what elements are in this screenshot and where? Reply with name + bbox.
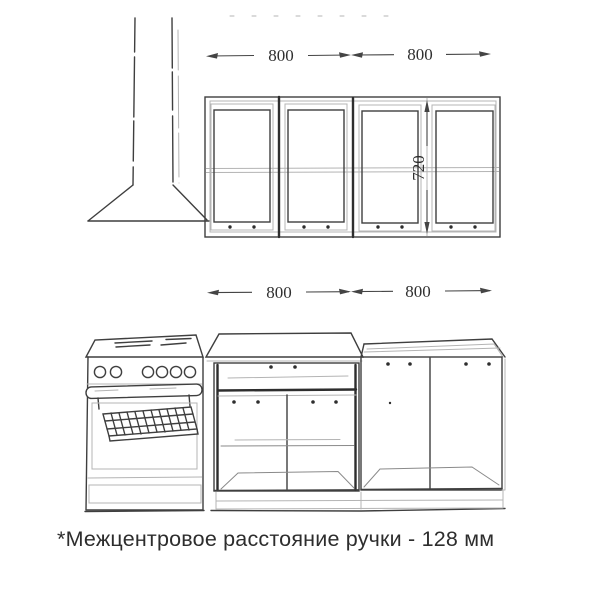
- door-handle-screw: [487, 362, 491, 366]
- drawer-handle-screw: [269, 365, 273, 369]
- oven-rack-grid: [103, 407, 198, 441]
- base-plinth: [211, 491, 505, 511]
- door-handle-screw: [376, 225, 379, 228]
- stray-mark: [389, 402, 391, 404]
- stove-knob: [94, 366, 105, 377]
- hood-canopy-right-slant: [173, 185, 207, 220]
- stove-knob: [142, 366, 153, 377]
- stove-burner-marks: [115, 339, 191, 348]
- right-door-bottom-line: [361, 489, 502, 490]
- base-cabinet-drawer-unit: [206, 333, 363, 491]
- dim-label-upper-left: 800: [268, 46, 294, 65]
- cooker-hood-drawing: [88, 18, 209, 221]
- stove-base-line: [85, 511, 204, 512]
- drawer-front: [228, 365, 348, 378]
- wall-cabinet-door: [211, 104, 273, 230]
- drawing-canvas: 800 800 720 800 800: [0, 0, 600, 600]
- door-handle-screw: [256, 400, 260, 404]
- right-cabinet-top-rails: [361, 339, 505, 357]
- door-handle-screw: [252, 225, 255, 228]
- stove-drawing: [85, 335, 204, 512]
- right-cabinet-carcass: [361, 357, 502, 490]
- kitchen-elevation-svg: 800 800 720 800 800: [0, 0, 600, 600]
- door-handle-screw: [400, 225, 403, 228]
- base-cabinet-double-door-unit: [361, 339, 505, 490]
- stove-knob: [170, 366, 181, 377]
- dim-upper-left: 800: [206, 46, 351, 65]
- hood-chimney-left-line: [133, 18, 135, 185]
- wall-cabinet-door: [285, 104, 347, 230]
- door-handle-screw: [464, 362, 468, 366]
- hood-chimney-right-line: [172, 18, 173, 185]
- dim-label-cabinet-height: 720: [409, 155, 428, 181]
- middle-cabinet-doors: [218, 395, 356, 489]
- middle-cabinet-shelf: [221, 446, 354, 447]
- door-handle-screw: [408, 362, 412, 366]
- door-handle-screw: [326, 225, 329, 228]
- right-cabinet-floor: [364, 467, 499, 487]
- countertop-middle: [206, 333, 363, 357]
- dim-height-720: 720: [409, 100, 430, 234]
- door-handle-screw: [473, 225, 476, 228]
- door-handle-screw: [449, 225, 452, 228]
- stove-door-bottom-line: [88, 477, 202, 478]
- dim-lower-right: 800: [351, 282, 492, 301]
- dim-label-lower-left: 800: [266, 283, 292, 302]
- stove-knob: [110, 366, 121, 377]
- middle-door-bottom-line: [214, 490, 359, 491]
- door-handle-screw: [232, 400, 236, 404]
- door-handle-screw: [334, 400, 338, 404]
- middle-cabinet-shelf-back: [235, 440, 340, 441]
- door-handle-screw: [386, 362, 390, 366]
- hood-chimney-inner-line: [178, 30, 179, 183]
- oven-door: [92, 403, 198, 469]
- dim-label-lower-right: 800: [405, 282, 431, 301]
- door-handle-screw: [302, 225, 305, 228]
- drawer-handle-screw: [293, 365, 297, 369]
- dim-lower-left: 800: [207, 283, 351, 302]
- door-handle-screw: [311, 400, 315, 404]
- drawer-bottom-rail: [218, 390, 356, 391]
- hood-canopy-left-slant: [88, 185, 133, 221]
- stove-knob: [156, 366, 167, 377]
- stove-drawer: [89, 485, 201, 503]
- dim-label-upper-right: 800: [407, 45, 433, 64]
- wall-cabinets-drawing: [205, 97, 500, 237]
- door-handle-screw: [228, 225, 231, 228]
- oven-handle: [86, 384, 202, 409]
- dim-upper-right: 800: [351, 45, 491, 64]
- stove-knob: [184, 366, 195, 377]
- handle-distance-note: *Межцентровое расстояние ручки - 128 мм: [57, 527, 557, 552]
- stove-knobs: [94, 366, 195, 377]
